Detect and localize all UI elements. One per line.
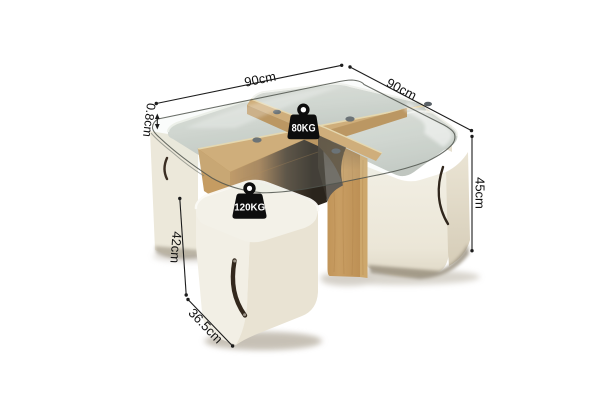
svg-text:42cm: 42cm (167, 231, 184, 264)
svg-text:120KG: 120KG (234, 202, 265, 214)
svg-text:45cm: 45cm (473, 177, 488, 209)
svg-text:80KG: 80KG (292, 123, 316, 135)
